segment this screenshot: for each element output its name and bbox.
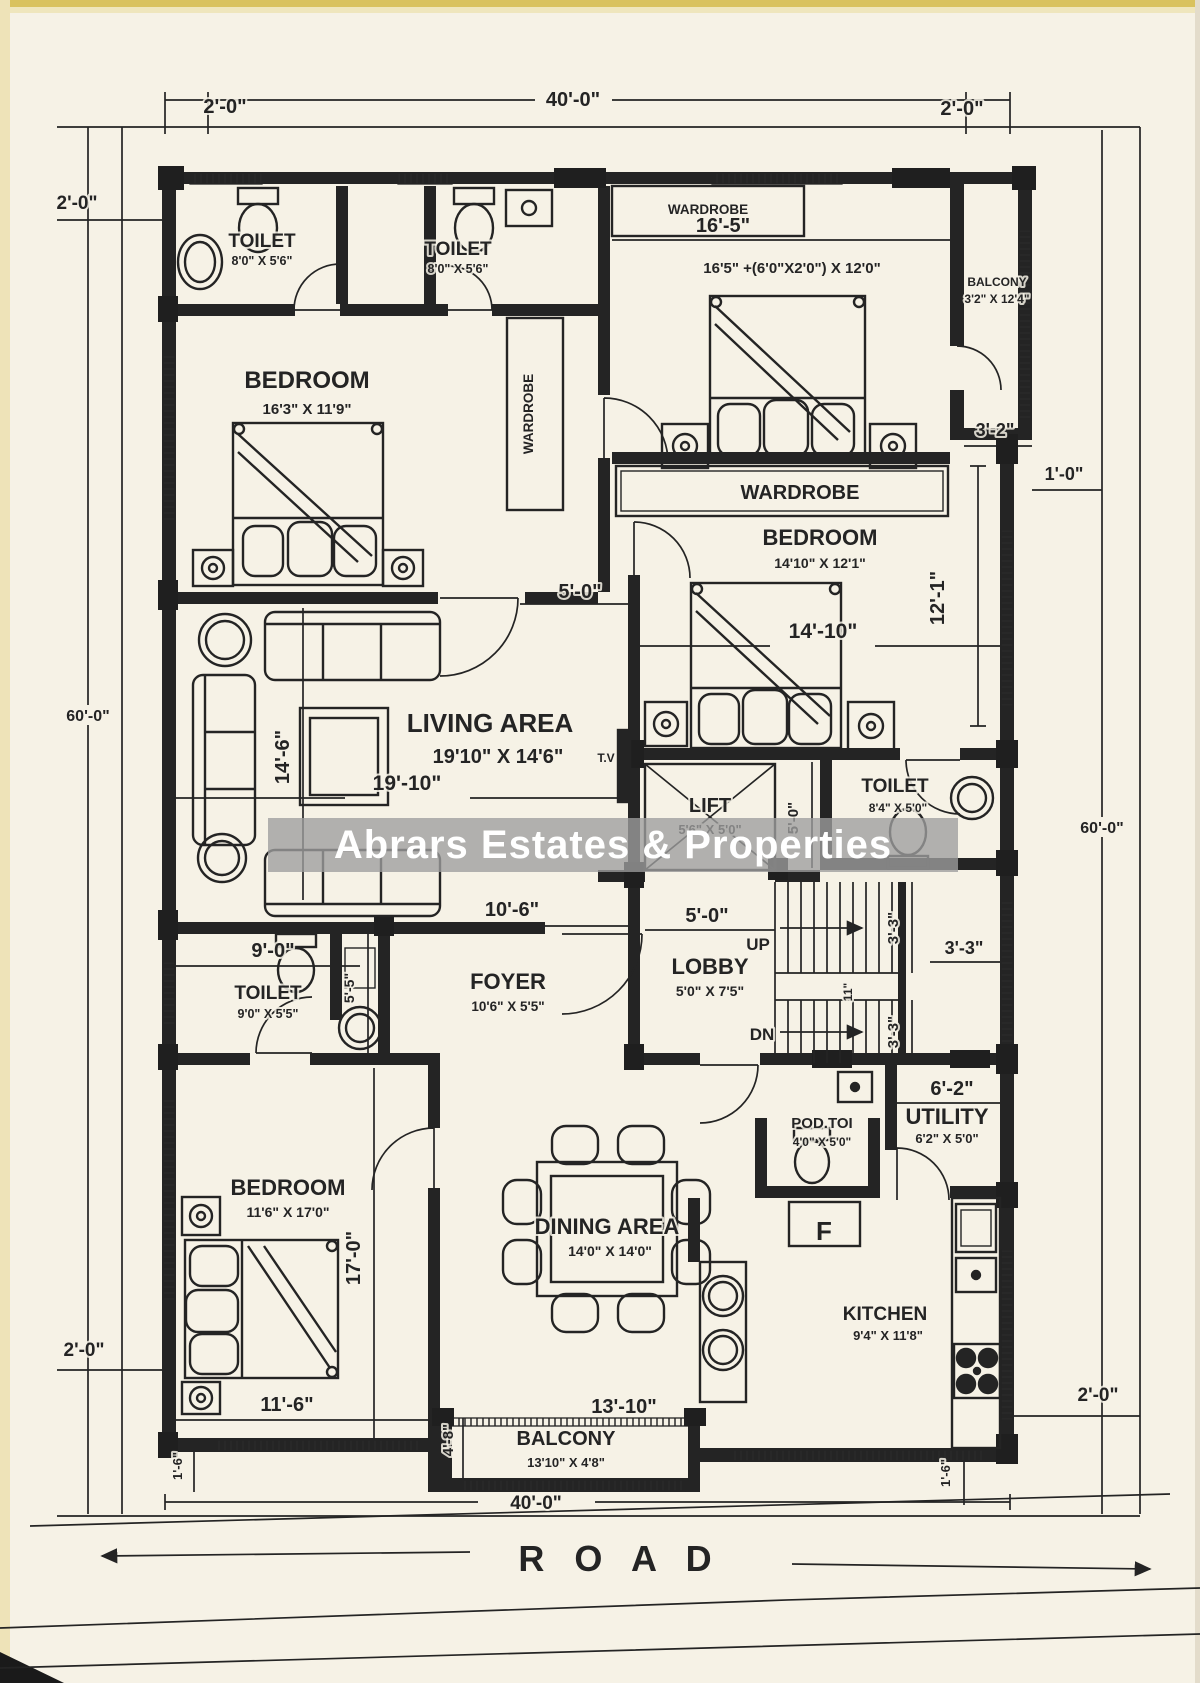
room-size-dining: 14'0" X 14'0" xyxy=(568,1243,652,1259)
balcony-rail xyxy=(452,1418,688,1426)
dim-right-height: 60'-0" xyxy=(1080,820,1123,837)
watermark: Abrars Estates & Properties xyxy=(268,818,958,872)
washbasin-icon xyxy=(506,190,552,226)
dim-13-10: 13'-10" xyxy=(591,1396,656,1418)
dim-bottom-width: 40'-0" xyxy=(510,1493,562,1514)
room-label-bedroom-bl: BEDROOM xyxy=(231,1175,346,1200)
wc-icon xyxy=(238,188,278,204)
room-size-lobby: 5'0" X 7'5" xyxy=(676,983,744,999)
room-size-bedroom-tr: 16'5" +(6'0"X2'0") X 12'0" xyxy=(703,260,880,277)
fridge-label: F xyxy=(816,1216,832,1246)
dim-11-6: 11'-6" xyxy=(260,1394,313,1416)
room-size-utility: 6'2" X 5'0" xyxy=(915,1131,978,1146)
bed-bottom-left-icon xyxy=(182,1197,338,1414)
dim-5-5: 5'-5" xyxy=(341,973,357,1003)
dim-16-5: 16'-5" xyxy=(696,215,750,237)
room-size-toilet-tl: 8'0" X 5'6" xyxy=(232,254,293,268)
room-size-toilet-mr: 8'4" X 5'0" xyxy=(869,801,927,815)
room-label-balcony-tr: BALCONY xyxy=(967,275,1026,289)
room-label-toilet-tm: TOILET xyxy=(424,239,492,260)
room-label-toilet-mr: TOILET xyxy=(861,776,929,797)
dim-12-1: 12'-1" xyxy=(927,571,949,625)
wall-junction-blocks xyxy=(158,166,1036,1464)
room-label-wardrobe-left: WARDROBE xyxy=(521,374,536,454)
dim-left-height: 60'-0" xyxy=(66,708,109,725)
room-size-toilet-bl: 9'0" X 5'5" xyxy=(238,1007,299,1021)
sink-icon xyxy=(956,1204,996,1252)
road-arrow-right xyxy=(792,1564,1150,1569)
floor-plan-page: 40'-0" 2'-0" 2'-0" 2'-0" 16'-5" 16'5" +(… xyxy=(0,0,1200,1683)
sofa-left-icon xyxy=(193,675,255,845)
room-label-bedroom-mr: BEDROOM xyxy=(763,525,878,550)
dim-3-3-up: 3'-3" xyxy=(885,912,902,944)
dim-offset-bottom-left: 2'-0" xyxy=(64,1340,105,1361)
room-label-dining: DINING AREA xyxy=(535,1214,680,1239)
room-size-toilet-tm: 8'0" X 5'6" xyxy=(428,262,489,276)
room-label-bedroom-tl: BEDROOM xyxy=(244,367,369,394)
room-size-bedroom-mr: 14'10" X 12'1" xyxy=(774,555,866,571)
sofa-top-icon xyxy=(265,612,440,680)
room-size-bedroom-bl: 11'6" X 17'0" xyxy=(247,1204,330,1220)
wc-icon xyxy=(454,188,494,204)
room-size-kitchen: 9'4" X 11'8" xyxy=(853,1328,923,1343)
sanitary-fixtures xyxy=(178,188,993,1183)
stairs-down-label: DN xyxy=(750,1025,775,1044)
room-label-living: LIVING AREA xyxy=(407,708,574,738)
room-label-lift: LIFT xyxy=(689,795,731,817)
room-label-balcony-b: BALCONY xyxy=(517,1428,617,1450)
room-label-wardrobe-mid: WARDROBE xyxy=(741,482,860,504)
dim-4-8: 4'-8" xyxy=(440,1424,457,1456)
room-size-podtoi: 4'0" X 5'0" xyxy=(793,1135,851,1149)
kitchen-counter xyxy=(952,1198,1000,1448)
dim-1-6-right: 1'-6" xyxy=(938,1459,953,1487)
bed-top-left-icon xyxy=(193,423,423,586)
tv-icon xyxy=(618,730,630,802)
room-size-balcony-tr: 3'2" X 12'4" xyxy=(964,292,1029,306)
dim-offset-top-left: 2'-0" xyxy=(203,96,246,118)
room-size-living: 19'10" X 14'6" xyxy=(433,746,564,768)
dim-offset-left: 2'-0" xyxy=(57,193,98,214)
room-label-kitchen: KITCHEN xyxy=(843,1304,927,1325)
room-label-foyer: FOYER xyxy=(470,969,546,994)
room-size-balcony-b: 13'10" X 4'8" xyxy=(527,1455,605,1470)
dim-6-2: 6'-2" xyxy=(930,1078,973,1100)
dim-19-10: 19'-10" xyxy=(373,772,442,795)
dim-14-6: 14'-6" xyxy=(272,730,294,784)
dim-10-6: 10'-6" xyxy=(485,899,539,921)
room-label-utility: UTILITY xyxy=(905,1104,988,1129)
dim-11in: 11" xyxy=(841,983,855,1001)
dim-offset-top-right: 2'-0" xyxy=(940,98,983,120)
dim-offset-bottom-right: 2'-0" xyxy=(1078,1385,1119,1406)
stairs-up-label: UP xyxy=(746,935,770,954)
room-label-podtoi: POD.TOI xyxy=(791,1115,852,1132)
room-label-lobby: LOBBY xyxy=(672,954,749,979)
dim-3-3-down: 3'-3" xyxy=(885,1016,902,1048)
room-label-wardrobe-top: WARDROBE xyxy=(668,202,748,217)
dim-14-10: 14'-10" xyxy=(789,620,858,643)
road-edge-line xyxy=(0,1588,1200,1628)
road-arrow-left xyxy=(102,1552,470,1556)
dim-5-0-lobby: 5'-0" xyxy=(685,905,728,927)
dim-9-0: 9'-0" xyxy=(251,940,294,962)
dim-17-0: 17'-0" xyxy=(343,1231,365,1285)
room-label-toilet-bl: TOILET xyxy=(234,983,302,1004)
room-size-foyer: 10'6" X 5'5" xyxy=(471,999,544,1014)
road-edge-line xyxy=(0,1634,1200,1668)
dim-1-6-left: 1'-6" xyxy=(170,1452,185,1480)
tv-label: T.V xyxy=(597,751,614,765)
dim-top-width: 40'-0" xyxy=(546,89,600,111)
dim-1-0: 1'-0" xyxy=(1045,464,1084,484)
room-size-bedroom-tl: 16'3" X 11'9" xyxy=(263,401,352,418)
bed-mid-right-icon xyxy=(645,583,894,750)
bed-top-right-icon xyxy=(662,296,916,468)
room-label-toilet-tl: TOILET xyxy=(228,231,296,252)
dim-5-0-opening: 5'-0" xyxy=(558,581,601,603)
road-edge-line xyxy=(30,1494,1170,1526)
road-label: R O A D xyxy=(518,1538,721,1579)
dim-3-3-right: 3'-3" xyxy=(945,938,984,958)
dim-3-2: 3'-2" xyxy=(976,420,1015,440)
road xyxy=(0,1494,1200,1668)
